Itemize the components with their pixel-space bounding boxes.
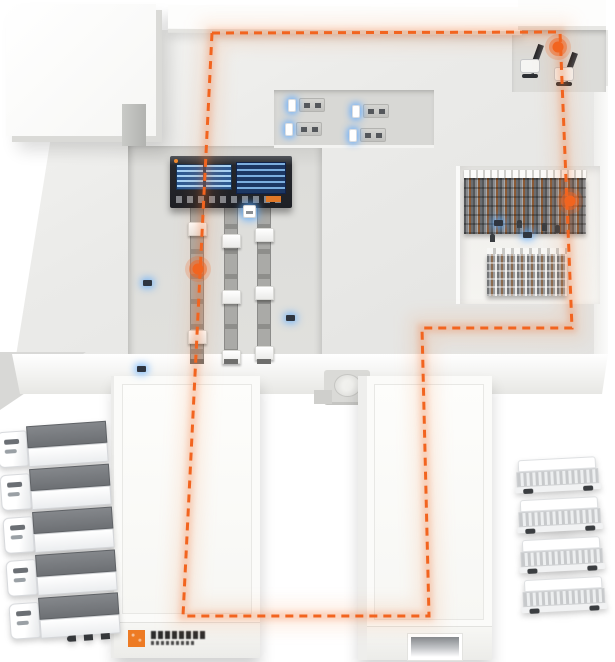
box-truck-fleet <box>514 456 615 631</box>
workstation <box>349 128 387 144</box>
truck-cab <box>0 473 32 511</box>
slab-front-face <box>12 354 608 394</box>
forklift <box>552 52 582 94</box>
top-right-roof <box>518 0 606 26</box>
top-left-doorway <box>122 104 146 146</box>
conveyor-line-1 <box>190 204 204 362</box>
semi-truck <box>5 549 120 599</box>
workstation-terminal-icon <box>288 99 296 112</box>
workstation-desk <box>296 122 322 136</box>
brand-text <box>151 631 205 647</box>
truck-cab <box>8 602 40 640</box>
conveyor-package <box>188 330 207 344</box>
annex-dock-door <box>408 634 462 660</box>
iot-sensor-icon <box>143 280 152 286</box>
workstation-desk <box>360 128 386 142</box>
conveyor-package <box>222 290 241 304</box>
truck-cab <box>0 430 29 468</box>
shipping-annex-left <box>114 376 260 658</box>
box-truck <box>518 536 606 576</box>
forklift-wheels <box>556 82 572 86</box>
conveyor-package <box>222 350 241 364</box>
worker-figure <box>555 225 560 233</box>
annex-dock-door-opening <box>411 637 459 657</box>
box-truck <box>516 496 604 536</box>
highbay-rack-row <box>464 178 586 234</box>
conveyor-line-3 <box>257 204 271 362</box>
conveyor-package <box>222 234 241 248</box>
iot-sensor-icon <box>523 232 532 238</box>
shipping-annex-right <box>358 376 492 660</box>
semi-truck <box>8 592 123 642</box>
workstation-terminal-icon <box>285 123 293 136</box>
annex-right-roof <box>374 384 484 620</box>
worker-figure <box>542 223 547 231</box>
board-orange-chip <box>266 196 281 202</box>
small-rack-row <box>487 254 567 296</box>
forklift-body <box>520 59 540 73</box>
monitoring-board <box>170 156 292 208</box>
conveyor-package <box>255 228 274 242</box>
brand-logo-icon <box>128 630 145 647</box>
workstation <box>352 104 390 120</box>
conveyor-line-2 <box>224 204 238 362</box>
iot-sensor-icon <box>286 315 295 321</box>
box-truck <box>520 576 608 616</box>
brand-text-line1 <box>151 631 205 639</box>
iot-sensor-icon <box>494 220 503 226</box>
top-parapet-wall <box>168 5 522 31</box>
workstation-desk <box>363 104 389 118</box>
truck-cab <box>2 516 34 554</box>
forklift-wheels <box>522 74 538 78</box>
semi-truck <box>2 506 117 556</box>
board-screen-right <box>236 162 286 194</box>
warehouse-scene <box>0 0 615 662</box>
box-truck <box>514 456 602 496</box>
brand-text-line2 <box>151 641 195 645</box>
board-screen-left <box>176 164 232 190</box>
agv-cart-icon <box>243 205 256 218</box>
workstation-terminal-icon <box>349 129 357 142</box>
annex-left-roof <box>122 384 252 614</box>
board-indicator <box>174 159 178 163</box>
worker-figure <box>490 234 495 242</box>
annex-left-front <box>114 622 260 658</box>
small-rack-caps <box>487 248 567 254</box>
conveyor-package <box>188 222 207 236</box>
workstation-desk <box>299 98 325 112</box>
workstation <box>285 122 323 138</box>
semi-truck-fleet <box>0 420 130 658</box>
conveyor-package <box>255 346 274 360</box>
conveyor-package <box>255 286 274 300</box>
roof-vent-step <box>314 390 332 404</box>
truck-cab <box>5 559 37 597</box>
workstation-terminal-icon <box>352 105 360 118</box>
forklift-body <box>554 67 574 81</box>
workstation <box>288 98 326 114</box>
forklift <box>518 44 548 86</box>
semi-truck <box>0 421 111 471</box>
highbay-rack-caps <box>464 170 586 178</box>
worker-figure <box>517 220 522 228</box>
semi-truck <box>0 463 114 513</box>
iot-sensor-icon <box>137 366 146 372</box>
